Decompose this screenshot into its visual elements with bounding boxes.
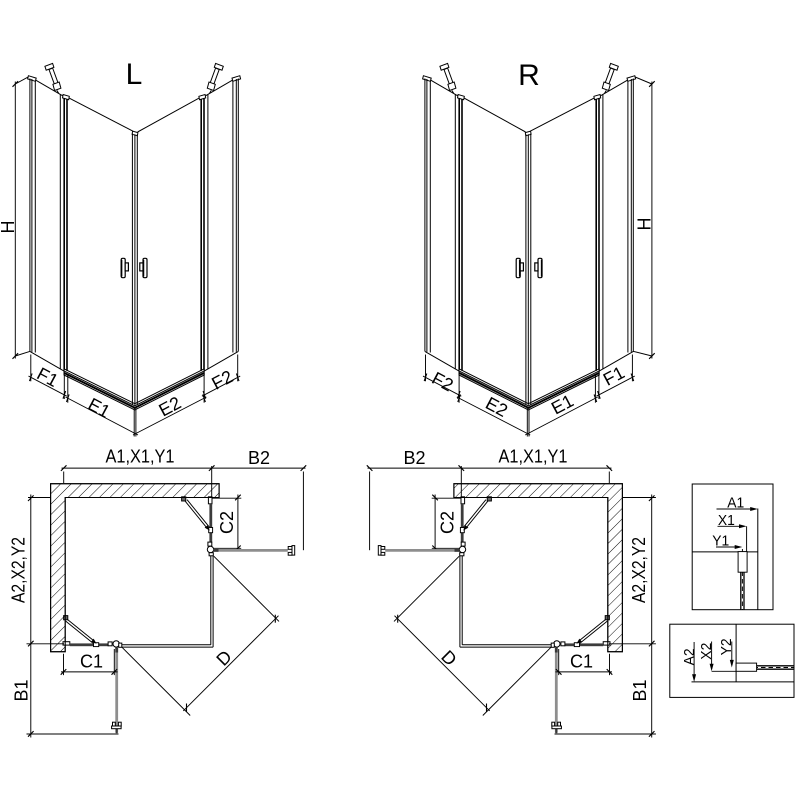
svg-text:L: L xyxy=(126,58,143,91)
svg-text:A1: A1 xyxy=(727,494,744,511)
svg-text:A2: A2 xyxy=(681,648,698,665)
svg-text:A1,X1,Y1: A1,X1,Y1 xyxy=(106,447,175,467)
svg-text:C2: C2 xyxy=(217,511,237,534)
svg-text:Y2: Y2 xyxy=(718,638,735,655)
svg-text:B2: B2 xyxy=(248,448,270,468)
svg-text:A2,X2,Y2: A2,X2,Y2 xyxy=(629,537,649,603)
svg-text:B1: B1 xyxy=(630,679,650,701)
svg-text:X1: X1 xyxy=(718,512,735,529)
svg-text:C2: C2 xyxy=(438,511,458,534)
svg-text:A2,X2,Y2: A2,X2,Y2 xyxy=(8,537,28,603)
svg-text:H: H xyxy=(635,218,655,231)
svg-text:X2: X2 xyxy=(698,643,715,660)
svg-text:Y1: Y1 xyxy=(712,533,729,550)
svg-text:H: H xyxy=(0,221,18,234)
svg-text:A1,X1,Y1: A1,X1,Y1 xyxy=(499,447,568,467)
svg-text:C1: C1 xyxy=(570,652,593,672)
svg-text:R: R xyxy=(518,59,540,92)
svg-text:C1: C1 xyxy=(80,652,103,672)
svg-text:B2: B2 xyxy=(403,448,425,468)
svg-text:B1: B1 xyxy=(12,679,32,701)
